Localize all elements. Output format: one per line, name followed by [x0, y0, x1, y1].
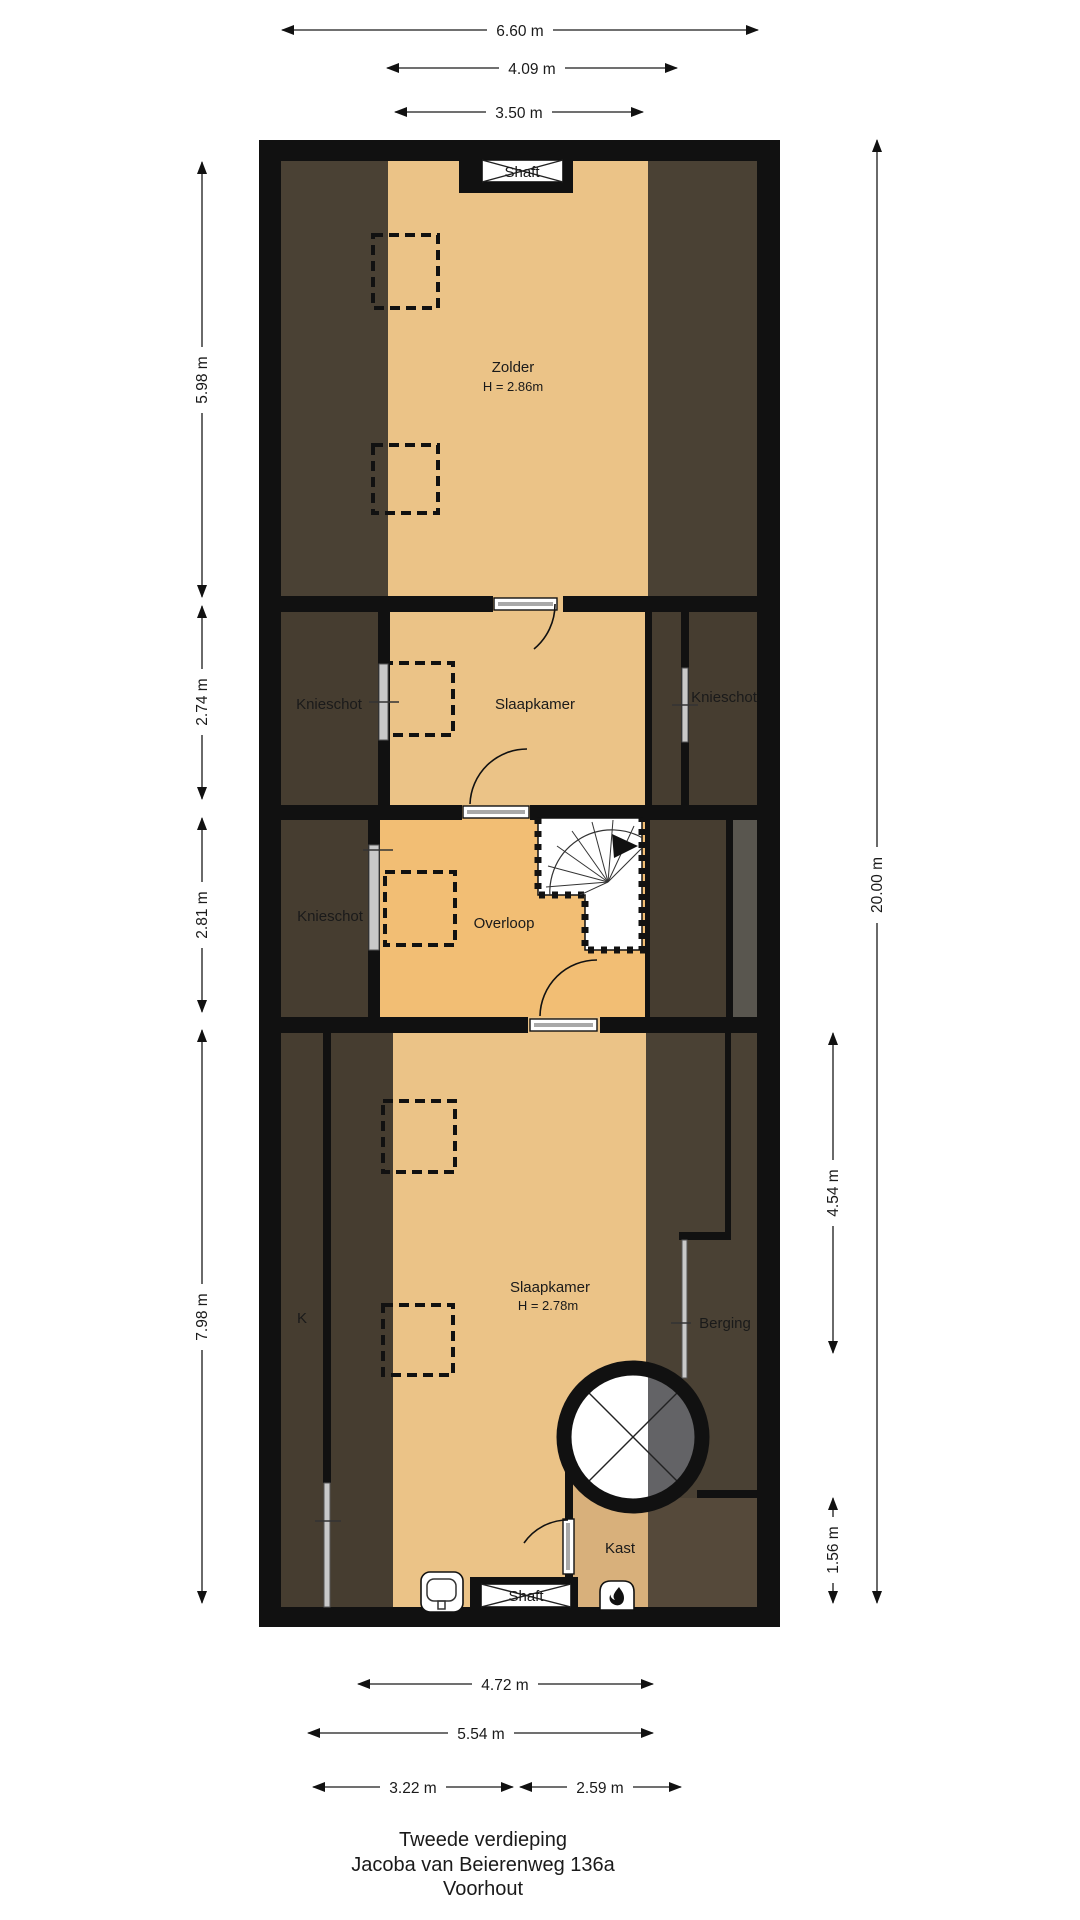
floorplan-page: Shaft Shaft — [0, 0, 1080, 1920]
shaft-top: Shaft — [459, 140, 573, 193]
dim-bottom-554: 5.54 m — [457, 1726, 504, 1743]
berging-opening-marker — [682, 1240, 687, 1378]
dim-right-156: 1.56 m — [825, 1526, 842, 1573]
circular-shaft — [564, 1368, 713, 1506]
dim-right-2000: 20.00 m — [869, 857, 886, 913]
label-k: K — [297, 1310, 307, 1327]
roof-slope-zolder-right — [648, 161, 757, 596]
knieschot-area-right — [652, 612, 757, 805]
dim-bottom-472: 4.72 m — [481, 1677, 528, 1694]
window-marker — [324, 1483, 330, 1607]
label-overloop: Overloop — [474, 915, 535, 932]
dim-left-798: 7.98 m — [194, 1293, 211, 1340]
roof-slope-bottom-corner — [648, 1498, 757, 1607]
label-knieschot-left-top: Knieschot — [296, 696, 363, 713]
boiler-icon — [600, 1581, 634, 1610]
label-slaapkamer-bottom: Slaapkamer — [510, 1279, 590, 1296]
wall-interior — [563, 596, 780, 612]
wall-room-right — [645, 612, 652, 805]
wall-interior — [259, 805, 462, 820]
roof-slope-overloop-right — [650, 818, 726, 1017]
wall-room-right — [645, 818, 650, 1017]
k-wall — [323, 1033, 331, 1483]
dim-top-660: 6.60 m — [496, 23, 543, 40]
sink-icon — [421, 1572, 463, 1612]
wall-shaft-strip — [726, 818, 733, 1017]
title-floor: Tweede verdieping — [399, 1829, 567, 1851]
dim-top-350: 3.50 m — [495, 105, 542, 122]
title-city: Voorhout — [443, 1878, 524, 1900]
berging-step-wall — [679, 1232, 731, 1240]
wall-exterior-left — [259, 140, 281, 1627]
label-zolder: Zolder — [492, 359, 535, 376]
shaft-top-label: Shaft — [504, 164, 540, 181]
dim-left-274: 2.74 m — [194, 678, 211, 725]
wall-interior — [600, 1017, 780, 1033]
berging-bottom-wall — [697, 1490, 757, 1498]
label-zolder-height: H = 2.86m — [483, 379, 543, 394]
window-marker — [369, 845, 379, 950]
shaft-bottom: Shaft — [470, 1577, 578, 1613]
title-address: Jacoba van Beierenweg 136a — [351, 1854, 615, 1876]
dim-left-281: 2.81 m — [194, 891, 211, 938]
wall-interior — [259, 1017, 528, 1033]
label-knieschot-left-mid: Knieschot — [297, 908, 364, 925]
wall-exterior-right — [757, 140, 780, 1627]
shaft-strip-gray — [733, 818, 757, 1017]
label-slaapkamer-top: Slaapkamer — [495, 696, 575, 713]
dim-bottom-259: 2.59 m — [576, 1780, 623, 1797]
label-knieschot-right: Knieschot — [691, 689, 758, 706]
roof-slope-zolder-left — [281, 161, 388, 596]
shaft-bottom-label: Shaft — [508, 1588, 544, 1605]
floorplan-drawing: Shaft Shaft — [0, 0, 1080, 1920]
dim-bottom-322: 3.22 m — [389, 1780, 436, 1797]
dim-top-409: 4.09 m — [508, 61, 555, 78]
berging-wall — [725, 1033, 731, 1240]
wall-interior — [259, 596, 493, 612]
label-slaapkamer-bottom-height: H = 2.78m — [518, 1298, 578, 1313]
dim-left-598: 5.98 m — [194, 356, 211, 403]
dim-right-454: 4.54 m — [825, 1169, 842, 1216]
label-berging: Berging — [699, 1315, 751, 1332]
label-kast: Kast — [605, 1540, 636, 1557]
